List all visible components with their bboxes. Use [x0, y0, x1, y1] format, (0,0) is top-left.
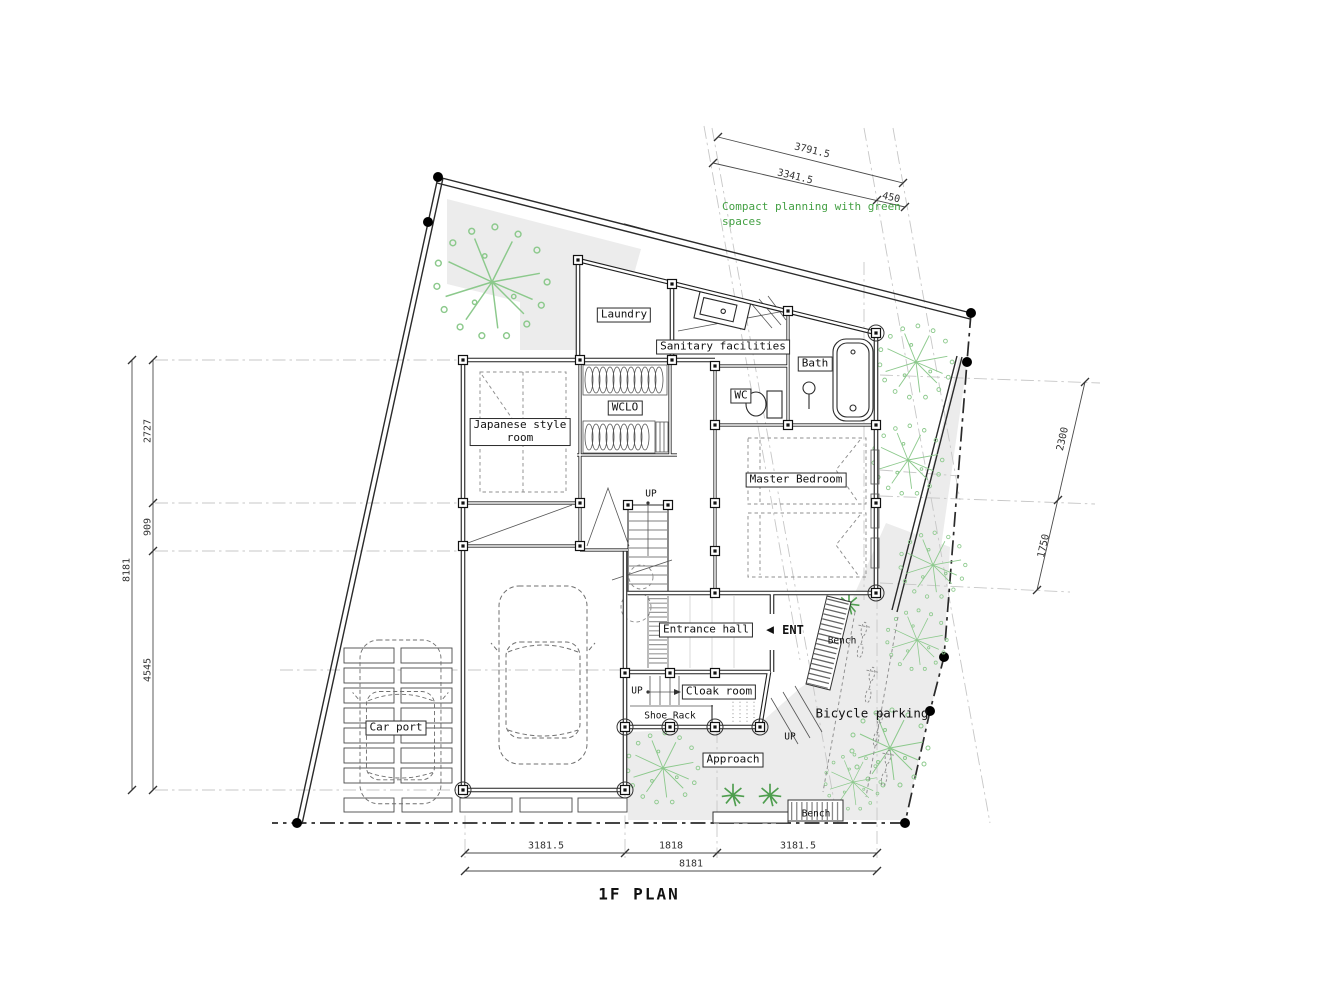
- dim-bottom-3181a: 3181.5: [528, 841, 564, 852]
- staircase: [465, 488, 672, 622]
- bathtub: [833, 339, 873, 421]
- room-label-car-port: Car port: [366, 721, 427, 736]
- dim-bottom-8181: 8181: [679, 859, 703, 870]
- up-label-cloak: UP: [631, 685, 642, 696]
- room-label-bath: Bath: [798, 357, 833, 372]
- green-note: Compact planning with green spaces: [722, 199, 901, 229]
- green-note-line1: Compact planning with green: [722, 199, 901, 214]
- dim-bottom-3181b: 3181.5: [780, 841, 816, 852]
- dim-left-909: 909: [143, 518, 154, 536]
- room-label-cloak-room: Cloak room: [682, 685, 756, 700]
- wash-stand: [803, 382, 815, 409]
- bench-lower-label: Bench: [802, 808, 831, 819]
- dim-left-8181: 8181: [122, 558, 133, 582]
- room-label-japanese-style-room: Japanese style room: [470, 418, 571, 446]
- room-label-approach: Approach: [703, 753, 764, 768]
- japanese-room-line2: room: [474, 432, 567, 445]
- room-label-sanitary-facilities: Sanitary facilities: [656, 340, 790, 355]
- car-garage: [491, 586, 595, 764]
- room-label-wclo: WCLO: [608, 401, 643, 416]
- dim-left-2727: 2727: [143, 419, 154, 443]
- bicycle-parking-label: Bicycle parking: [816, 707, 929, 722]
- dim-bottom-1818: 1818: [659, 841, 683, 852]
- dim-left-4545: 4545: [143, 658, 154, 682]
- room-label-master-bedroom: Master Bedroom: [746, 473, 847, 488]
- room-label-entrance-hall: Entrance hall: [659, 623, 753, 638]
- floor-plan-canvas: Laundry Sanitary facilities Bath WC WCLO…: [0, 0, 1342, 1000]
- entrance-arrow-icon: ◀: [766, 622, 774, 637]
- shoe-rack-label: Shoe Rack: [644, 710, 695, 721]
- bench-upper-label: Bench: [828, 635, 857, 646]
- up-label-stairs: UP: [645, 488, 656, 499]
- green-note-line2: spaces: [722, 214, 901, 229]
- plan-title: 1F PLAN: [598, 885, 679, 904]
- room-label-wc: WC: [730, 389, 751, 404]
- room-label-laundry: Laundry: [597, 308, 651, 323]
- beds-dashed: [748, 438, 866, 577]
- ent-label: ENT: [782, 623, 804, 637]
- up-label-approach: UP: [784, 731, 795, 742]
